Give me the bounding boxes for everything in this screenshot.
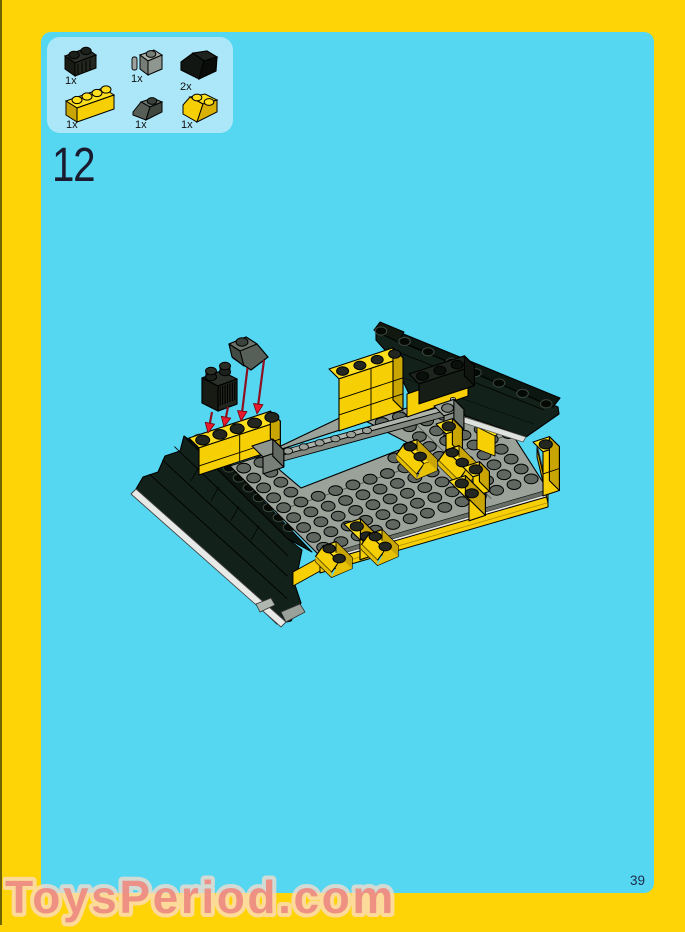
svg-text:2x: 2x — [180, 81, 192, 93]
svg-text:1x: 1x — [66, 119, 78, 131]
svg-text:1x: 1x — [135, 119, 147, 131]
svg-text:1x: 1x — [131, 73, 143, 85]
svg-text:1x: 1x — [65, 75, 77, 87]
svg-text:1x: 1x — [181, 119, 193, 131]
svg-text:ToysPeriod.com: ToysPeriod.com — [5, 871, 396, 923]
